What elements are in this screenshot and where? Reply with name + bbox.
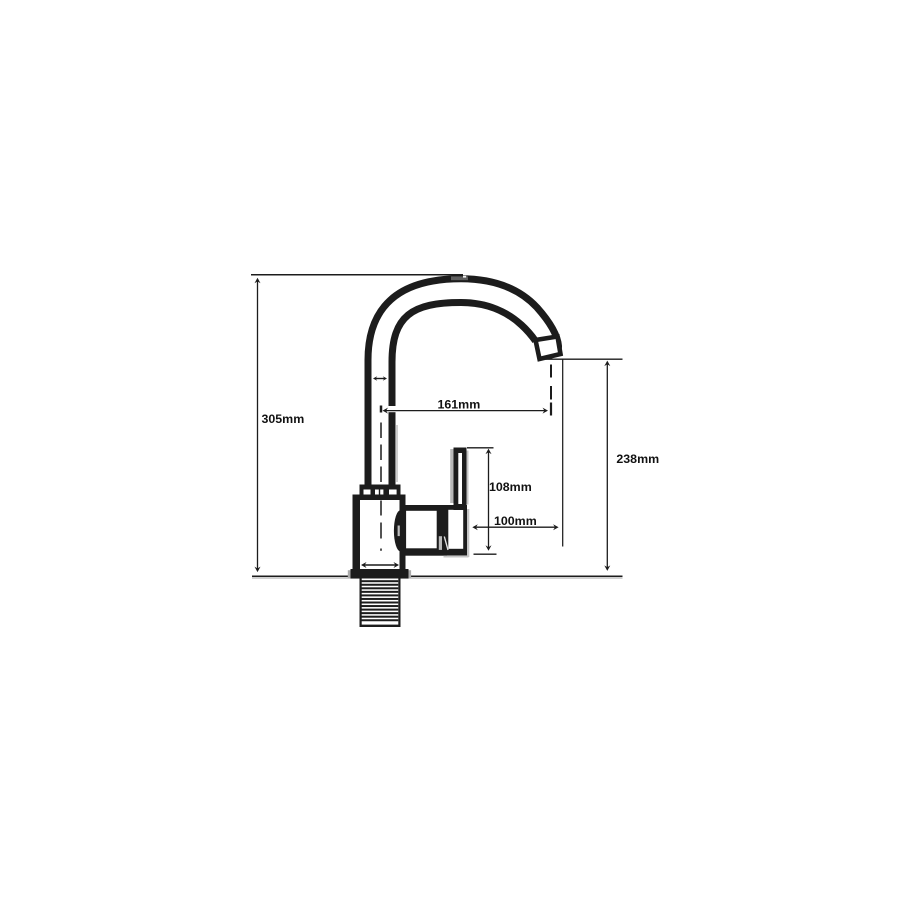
svg-text:238mm: 238mm xyxy=(616,452,659,466)
svg-text:161mm: 161mm xyxy=(438,398,481,412)
svg-text:305mm: 305mm xyxy=(262,412,305,426)
svg-text:108mm: 108mm xyxy=(489,480,532,494)
svg-text:100mm: 100mm xyxy=(494,514,537,528)
